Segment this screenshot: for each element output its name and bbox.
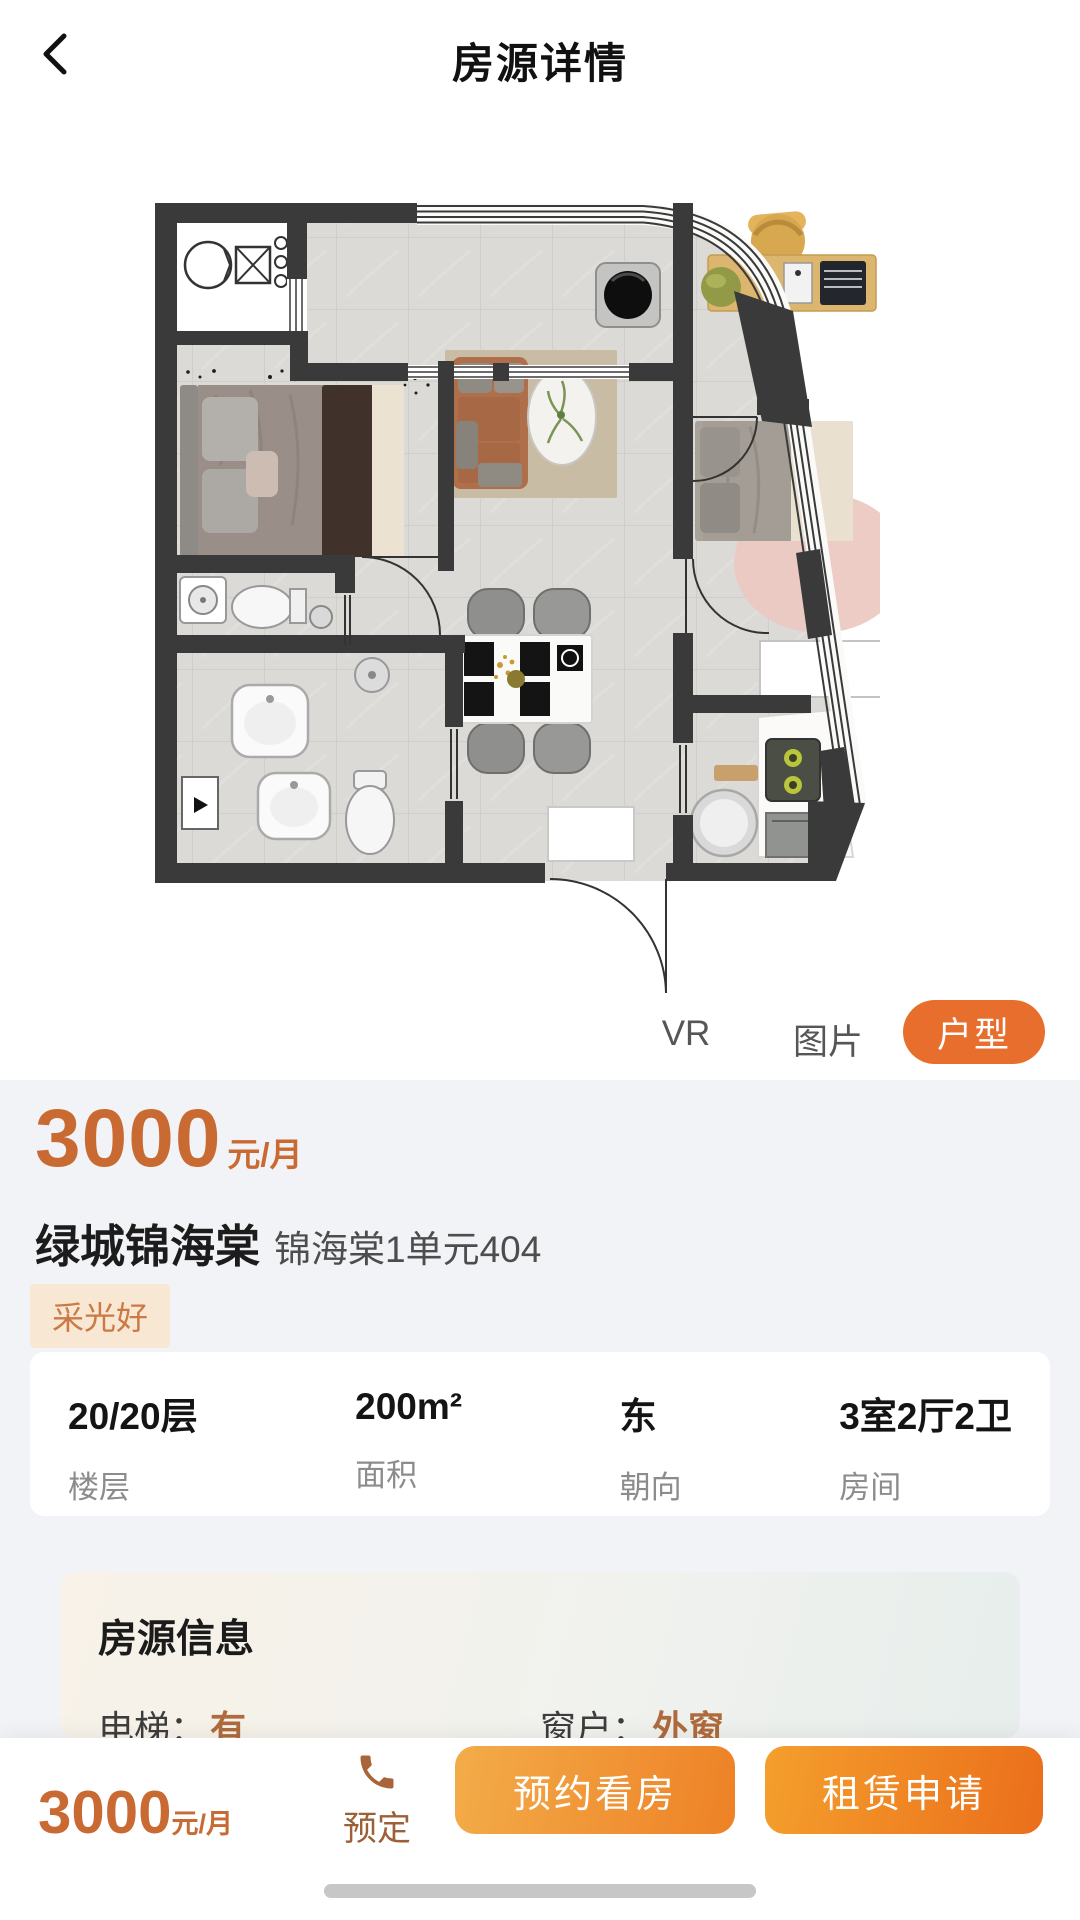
- home-indicator[interactable]: [324, 1884, 756, 1898]
- stat-floor-value: 20/20层: [68, 1386, 198, 1440]
- reserve-button[interactable]: 预定: [322, 1750, 432, 1850]
- stat-floor-label: 楼层: [68, 1462, 198, 1507]
- bottom-price-unit: 元/月: [171, 1809, 233, 1839]
- stat-rooms-value: 3室2厅2卫: [839, 1386, 1012, 1440]
- tab-vr[interactable]: VR: [648, 1014, 724, 1054]
- price-unit: 元/月: [227, 1136, 302, 1173]
- price-value: 3000: [35, 1093, 221, 1184]
- price-row: 3000元/月: [35, 1092, 303, 1186]
- stat-orientation: 东 朝向: [620, 1386, 682, 1516]
- info-value-window: 外窗: [652, 1708, 724, 1738]
- header: 房源详情: [0, 0, 1080, 110]
- stat-floor: 20/20层 楼层: [68, 1386, 198, 1516]
- feature-tag: 采光好: [30, 1284, 170, 1348]
- bottom-price: 3000元/月: [38, 1778, 233, 1847]
- stat-orientation-label: 朝向: [620, 1462, 682, 1507]
- stat-area-value: 200m²: [355, 1386, 462, 1428]
- media-tabs: VR 图片 户型: [0, 1000, 1080, 1070]
- info-label-elevator: 电梯：: [98, 1708, 206, 1738]
- tab-floorplan[interactable]: 户型: [903, 1000, 1045, 1064]
- info-rows: 电梯：有 窗户：外窗: [98, 1700, 982, 1738]
- info-row-window: 窗户：外窗: [540, 1700, 982, 1738]
- book-viewing-button[interactable]: 预约看房: [455, 1746, 735, 1834]
- info-label-window: 窗户：: [540, 1708, 648, 1738]
- stats-card: 20/20层 楼层 200m² 面积 东 朝向 3室2厅2卫 房间: [30, 1352, 1050, 1516]
- bottom-price-value: 3000: [38, 1779, 171, 1846]
- stat-rooms: 3室2厅2卫 房间: [839, 1386, 1012, 1516]
- info-row-elevator: 电梯：有: [98, 1700, 540, 1738]
- phone-icon: [355, 1750, 399, 1794]
- rental-apply-button[interactable]: 租赁申请: [765, 1746, 1043, 1834]
- stat-orientation-value: 东: [620, 1386, 682, 1440]
- tab-pictures[interactable]: 图片: [786, 1014, 870, 1065]
- listing-name: 绿城锦海棠: [35, 1221, 260, 1272]
- page-title: 房源详情: [0, 30, 1080, 91]
- info-card-title: 房源信息: [98, 1608, 982, 1664]
- listing-unit-name: 锦海棠1单元404: [274, 1229, 541, 1270]
- stat-area: 200m² 面积: [355, 1386, 462, 1516]
- info-value-elevator: 有: [210, 1708, 246, 1738]
- info-card: 房源信息 电梯：有 窗户：外窗: [60, 1572, 1020, 1738]
- stat-area-label: 面积: [355, 1450, 462, 1495]
- listing-name-row: 绿城锦海棠锦海棠1单元404: [35, 1210, 1045, 1275]
- floorplan-image[interactable]: [120, 165, 880, 1015]
- floorplan-svg: [120, 165, 880, 1015]
- stat-rooms-label: 房间: [839, 1462, 1012, 1507]
- reserve-label: 预定: [322, 1801, 432, 1850]
